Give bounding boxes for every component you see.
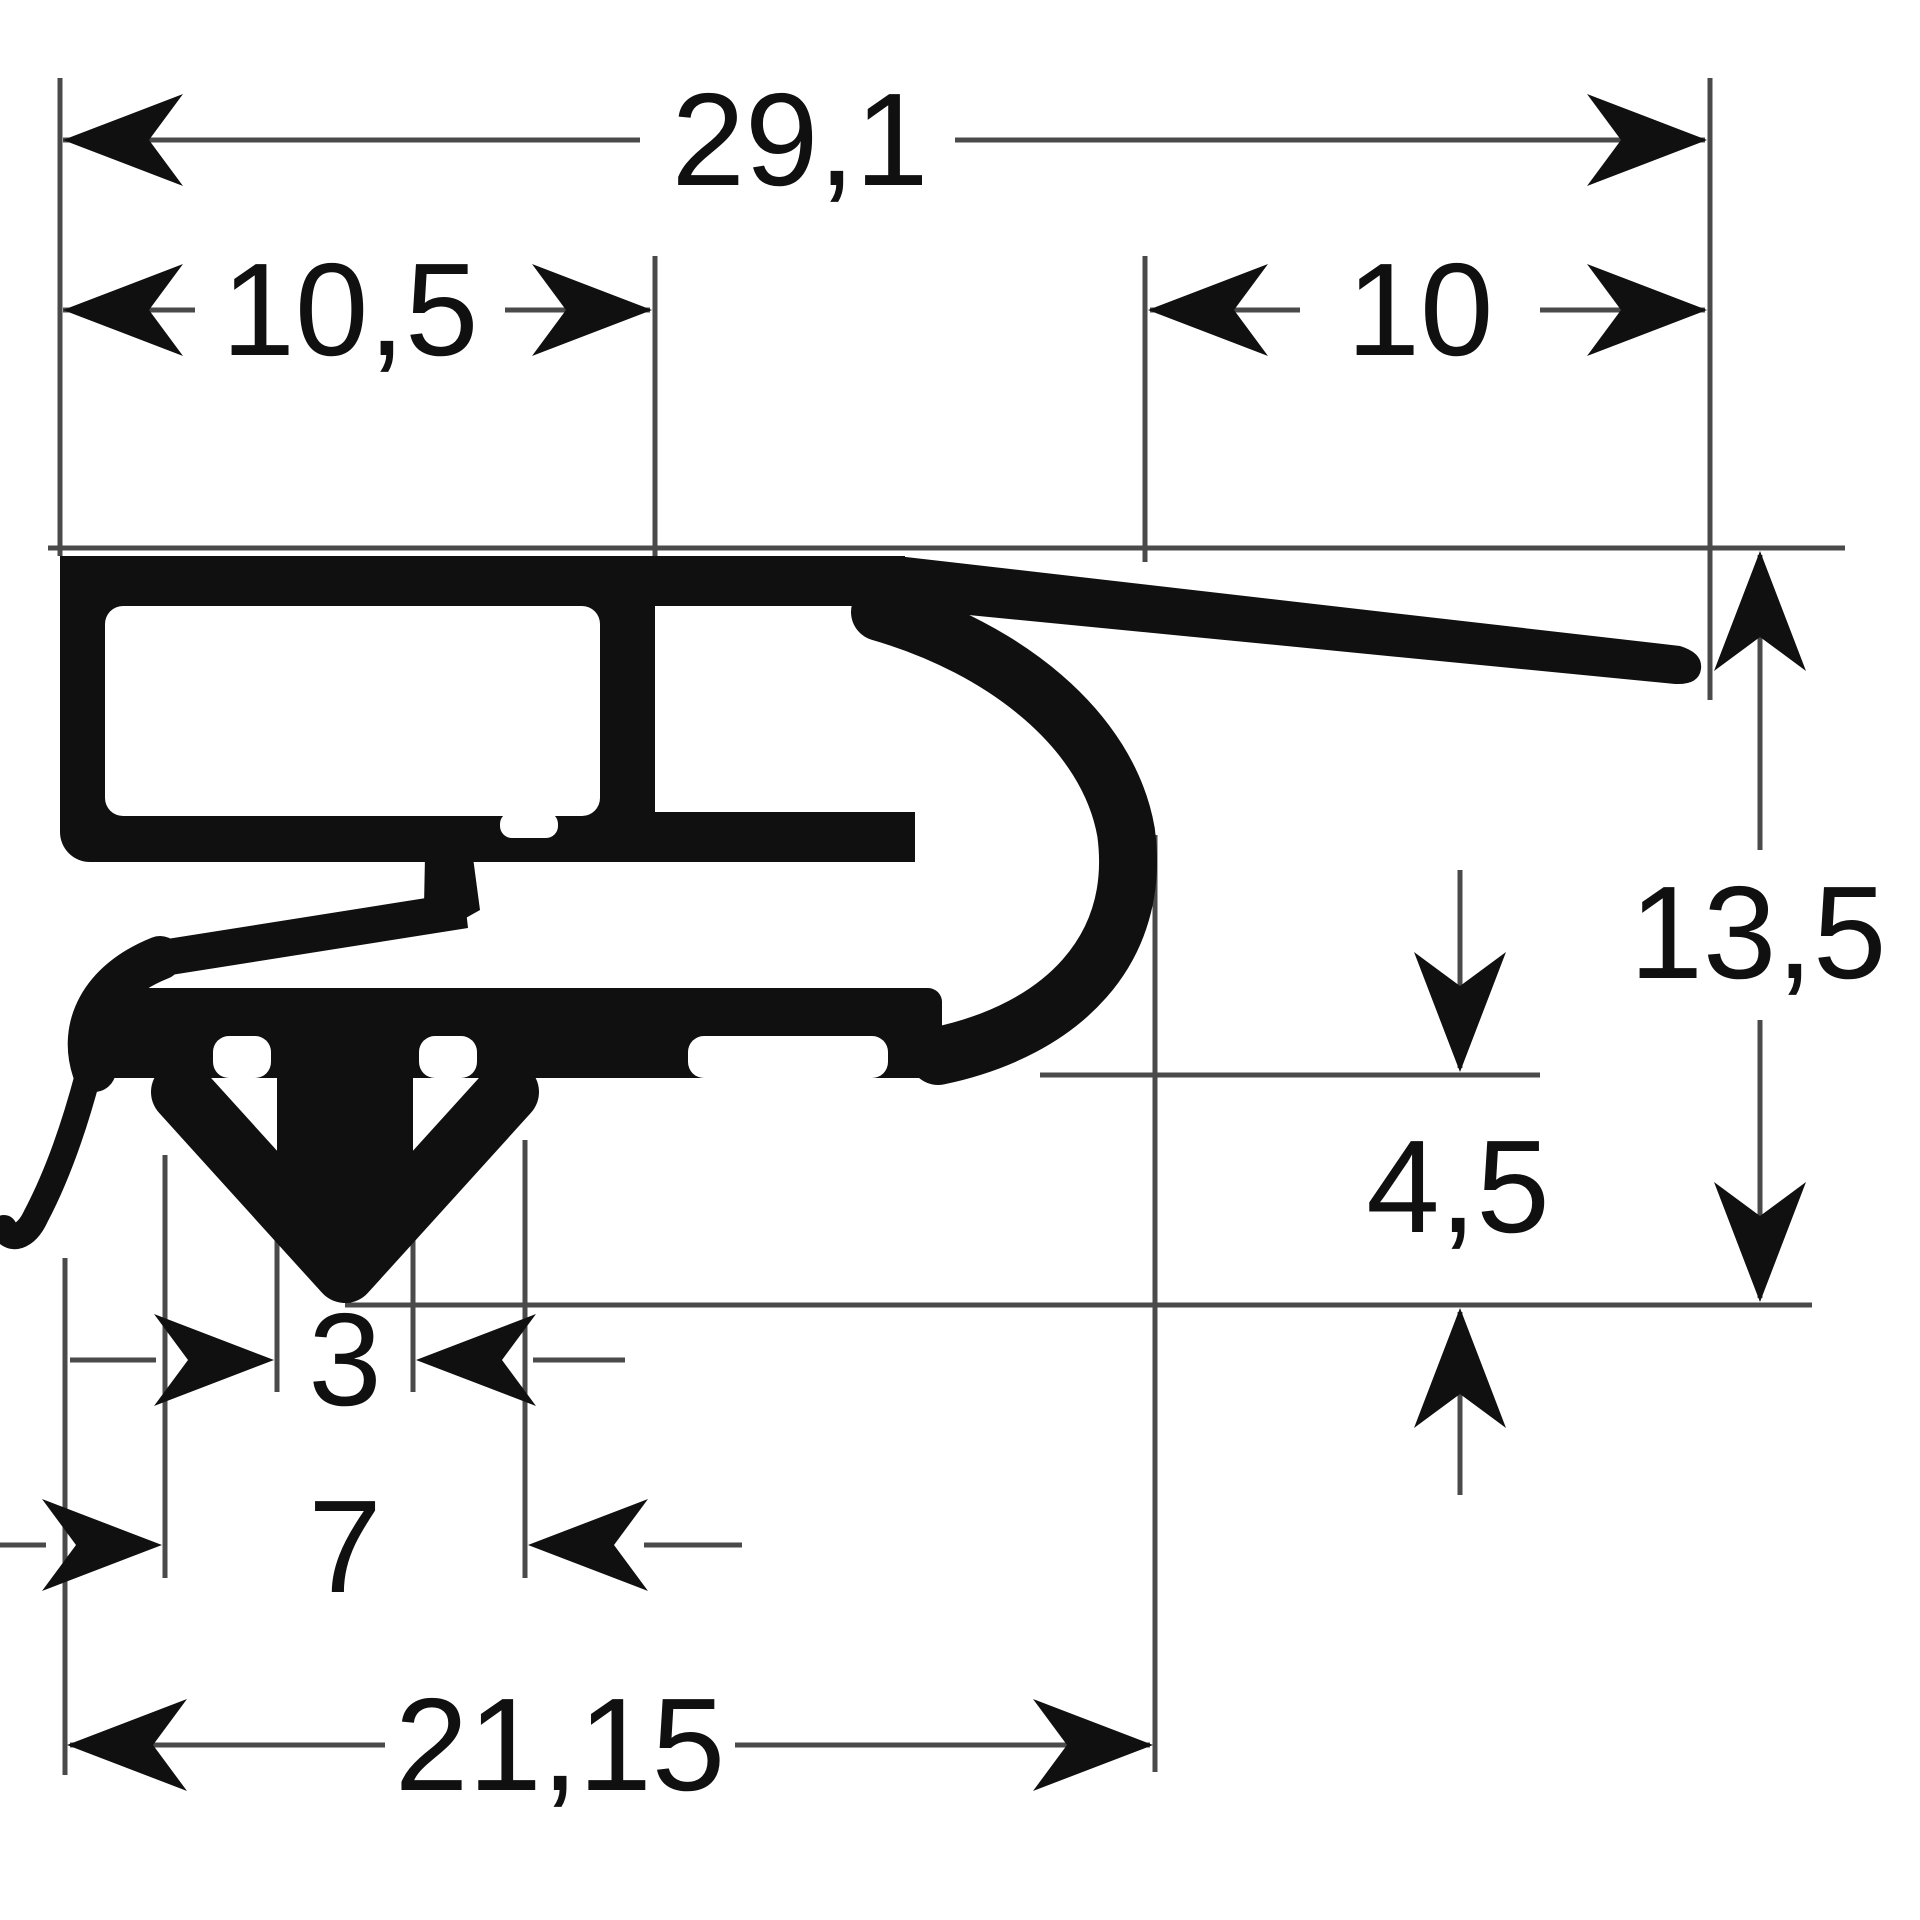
arrow-in-right-3 <box>416 1314 536 1406</box>
screw-channel-cavity <box>105 606 600 816</box>
arrow-in-left-7 <box>42 1499 162 1591</box>
lip <box>148 892 468 978</box>
foot-notch-left <box>213 1036 271 1078</box>
arrow-in-right-7 <box>528 1499 648 1591</box>
label-total-width: 29,1 <box>672 66 929 213</box>
arrow-in-left-3 <box>154 1314 274 1406</box>
label-foot-to-tip: 4,5 <box>1366 1113 1550 1260</box>
label-total-height: 13,5 <box>1630 859 1887 1006</box>
foot-notch-right <box>419 1036 477 1078</box>
label-barb-width: 7 <box>308 1473 381 1620</box>
label-stem-width: 3 <box>308 1286 381 1433</box>
mid-wall <box>600 812 915 862</box>
technical-drawing-canvas: 29,1 10,5 10 13,5 4,5 3 7 21,15 <box>0 0 1920 1920</box>
label-channel-width: 10,5 <box>222 236 479 383</box>
dip-notch <box>500 812 558 838</box>
tail <box>4 1075 88 1236</box>
label-flap-width: 10 <box>1347 236 1494 383</box>
foot-notch-wide <box>688 1036 888 1078</box>
gasket-profile-drawing: 29,1 10,5 10 13,5 4,5 3 7 21,15 <box>0 0 1920 1920</box>
label-body-width: 21,15 <box>395 1671 725 1818</box>
top-wall <box>60 556 905 606</box>
